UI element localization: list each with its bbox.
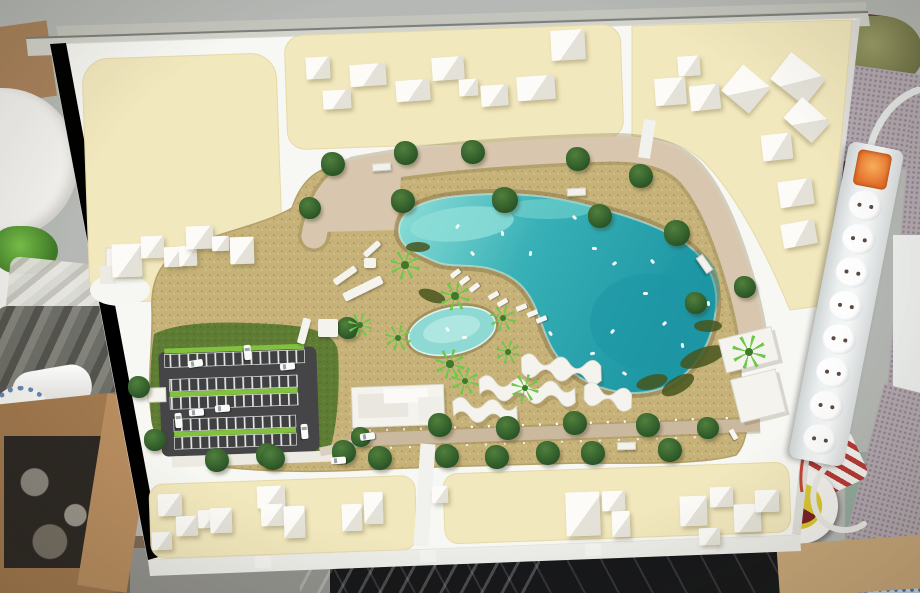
parking-south-road — [172, 456, 332, 462]
power-socket — [820, 321, 859, 357]
access-road-north — [644, 120, 650, 158]
parcel-bottom-left — [149, 475, 417, 558]
power-socket — [800, 422, 839, 458]
power-socket — [833, 255, 872, 291]
power-switch — [852, 149, 892, 191]
building-left-complex — [351, 384, 447, 431]
parcel-bottom-right — [443, 462, 791, 544]
power-socket — [846, 188, 885, 224]
access-road-south — [421, 444, 428, 546]
site-model-board — [0, 0, 920, 593]
power-socket — [826, 288, 865, 324]
promenade-plaza — [318, 168, 402, 232]
parking-booth — [148, 388, 166, 403]
parking-lot — [146, 343, 320, 457]
parcel-top-middle — [284, 24, 624, 150]
screenshot-root — [0, 0, 920, 593]
power-socket — [813, 355, 852, 391]
power-socket — [807, 388, 846, 424]
power-socket — [839, 221, 878, 257]
